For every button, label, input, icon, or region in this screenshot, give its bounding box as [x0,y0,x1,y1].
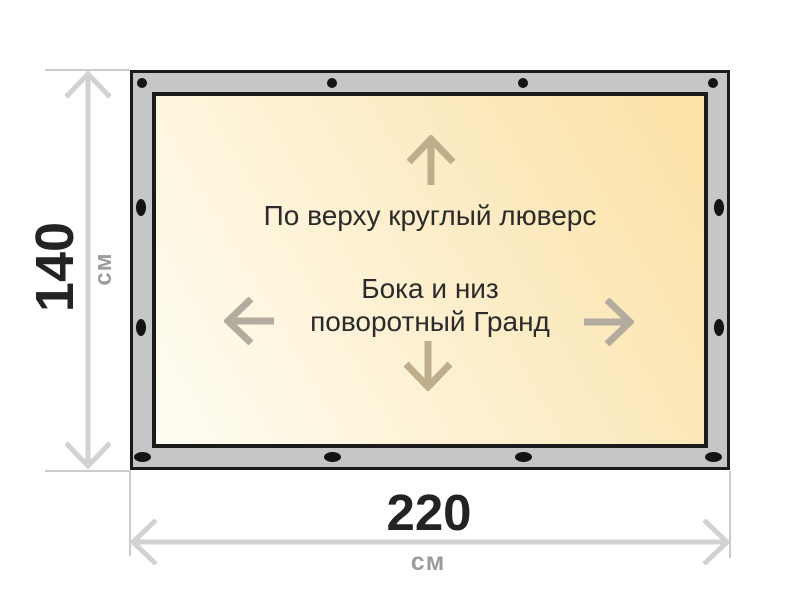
grommet [518,78,528,88]
grommet [705,452,722,462]
extension-line-bottom-left [45,470,130,472]
height-unit: см [89,219,119,319]
grommet [324,452,341,462]
height-value: 140 [25,167,85,367]
grommet [515,452,532,462]
grommet [708,78,718,88]
top-edge-note: По верху круглый люверс [152,199,708,232]
grommet [714,199,724,216]
spread-arrow-left-icon [224,297,276,345]
grommet [134,452,151,462]
spread-arrow-up-icon [407,135,455,187]
grommet [136,319,146,336]
grommet [137,78,147,88]
grommet [136,199,146,216]
banner-frame [130,70,730,470]
grommet [327,78,337,88]
width-value: 220 [329,487,529,539]
grommet [714,319,724,336]
spread-arrow-down-icon [404,339,452,391]
spread-arrow-right-icon [582,298,634,346]
banner-dimension-diagram: По верху круглый люверс Бока и низ повор… [0,0,800,600]
width-unit: см [328,549,528,575]
